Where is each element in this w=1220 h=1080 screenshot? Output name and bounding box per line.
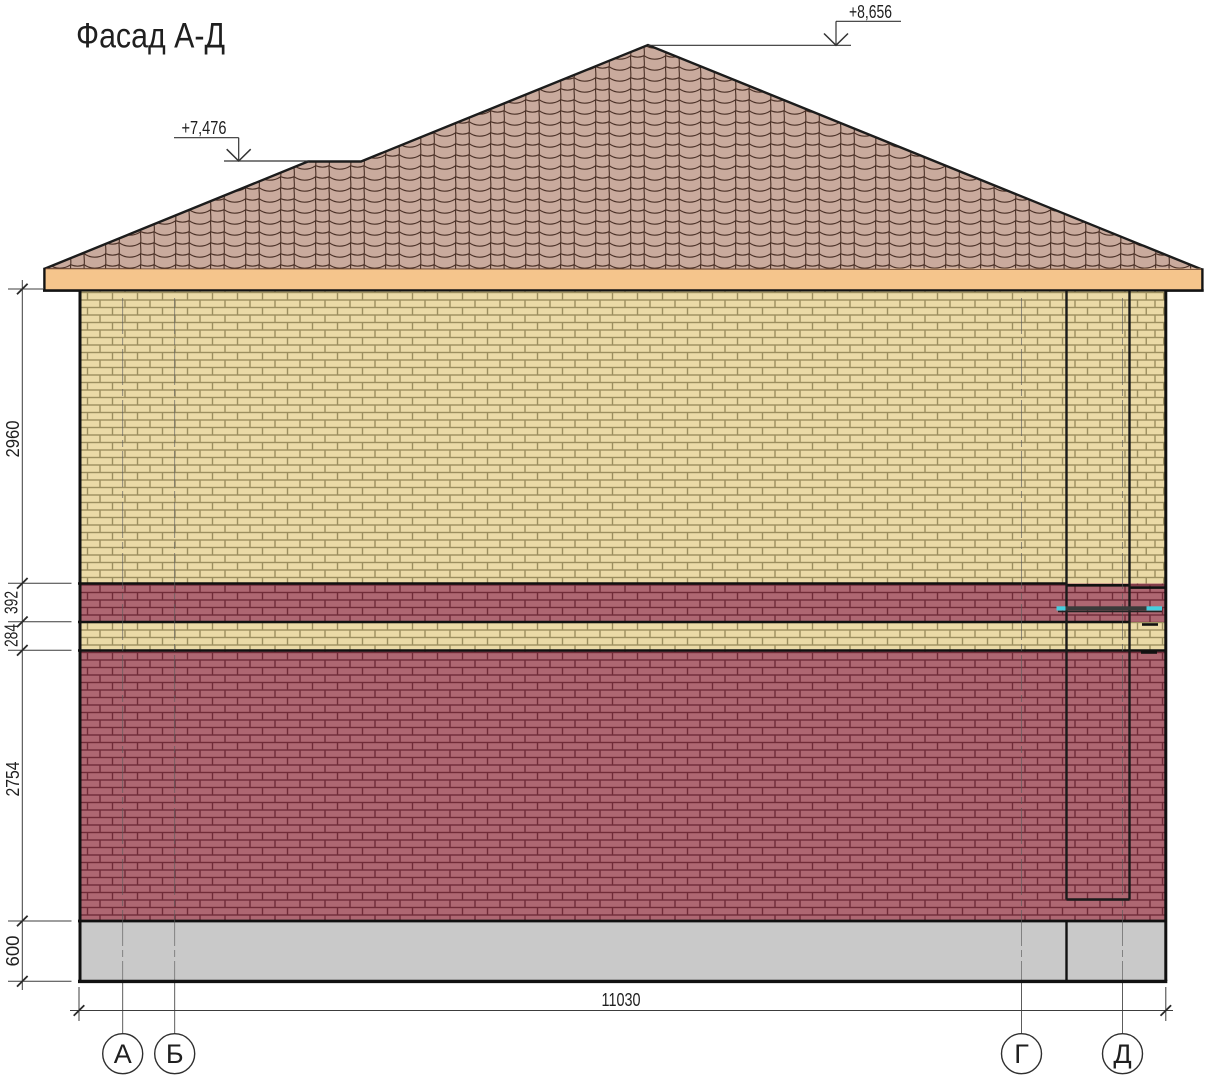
svg-text:2960: 2960 — [2, 421, 23, 458]
svg-text:А: А — [114, 1039, 132, 1069]
svg-text:Д: Д — [1113, 1039, 1131, 1069]
svg-text:284: 284 — [1, 624, 22, 647]
svg-text:392: 392 — [1, 591, 22, 614]
svg-text:Фасад А-Д: Фасад А-Д — [76, 16, 225, 56]
svg-text:+7,476: +7,476 — [182, 118, 227, 138]
svg-text:2754: 2754 — [2, 762, 23, 797]
svg-text:Г: Г — [1014, 1039, 1029, 1069]
svg-text:Б: Б — [166, 1039, 184, 1069]
svg-text:600: 600 — [2, 936, 23, 967]
svg-text:11030: 11030 — [602, 989, 641, 1010]
svg-text:+8,656: +8,656 — [849, 2, 892, 22]
